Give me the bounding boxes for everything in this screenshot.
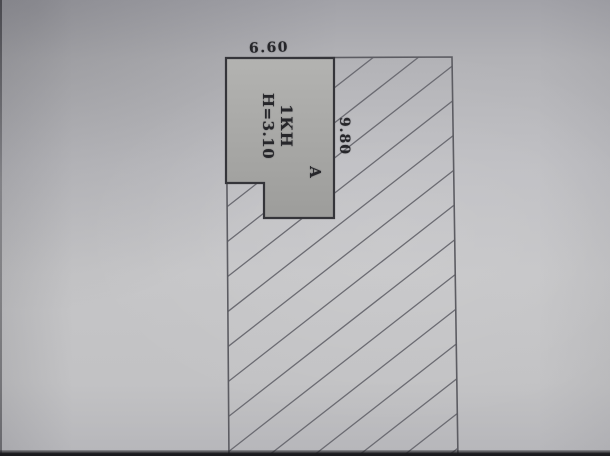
room-label: 1КН Н=3.10 — [259, 93, 295, 159]
section-letter-label: А — [306, 166, 324, 178]
plan-photo: 6.60 9.80 1КН Н=3.10 А — [0, 0, 610, 456]
hatch-line — [340, 48, 610, 456]
photo-left-edge — [0, 0, 2, 456]
hatch-line — [70, 48, 610, 456]
hatch-line — [0, 48, 250, 456]
photo-bottom-edge — [0, 450, 610, 456]
floor-plan-drawing — [0, 0, 610, 456]
hatch-line — [0, 48, 430, 456]
hatch-line — [385, 48, 610, 456]
length-dimension-label: 9.80 — [336, 117, 352, 155]
hatch-line — [115, 48, 610, 456]
width-dimension-label: 6.60 — [249, 39, 290, 56]
room-name: 1КН — [277, 93, 295, 159]
room-height: Н=3.10 — [259, 93, 277, 159]
